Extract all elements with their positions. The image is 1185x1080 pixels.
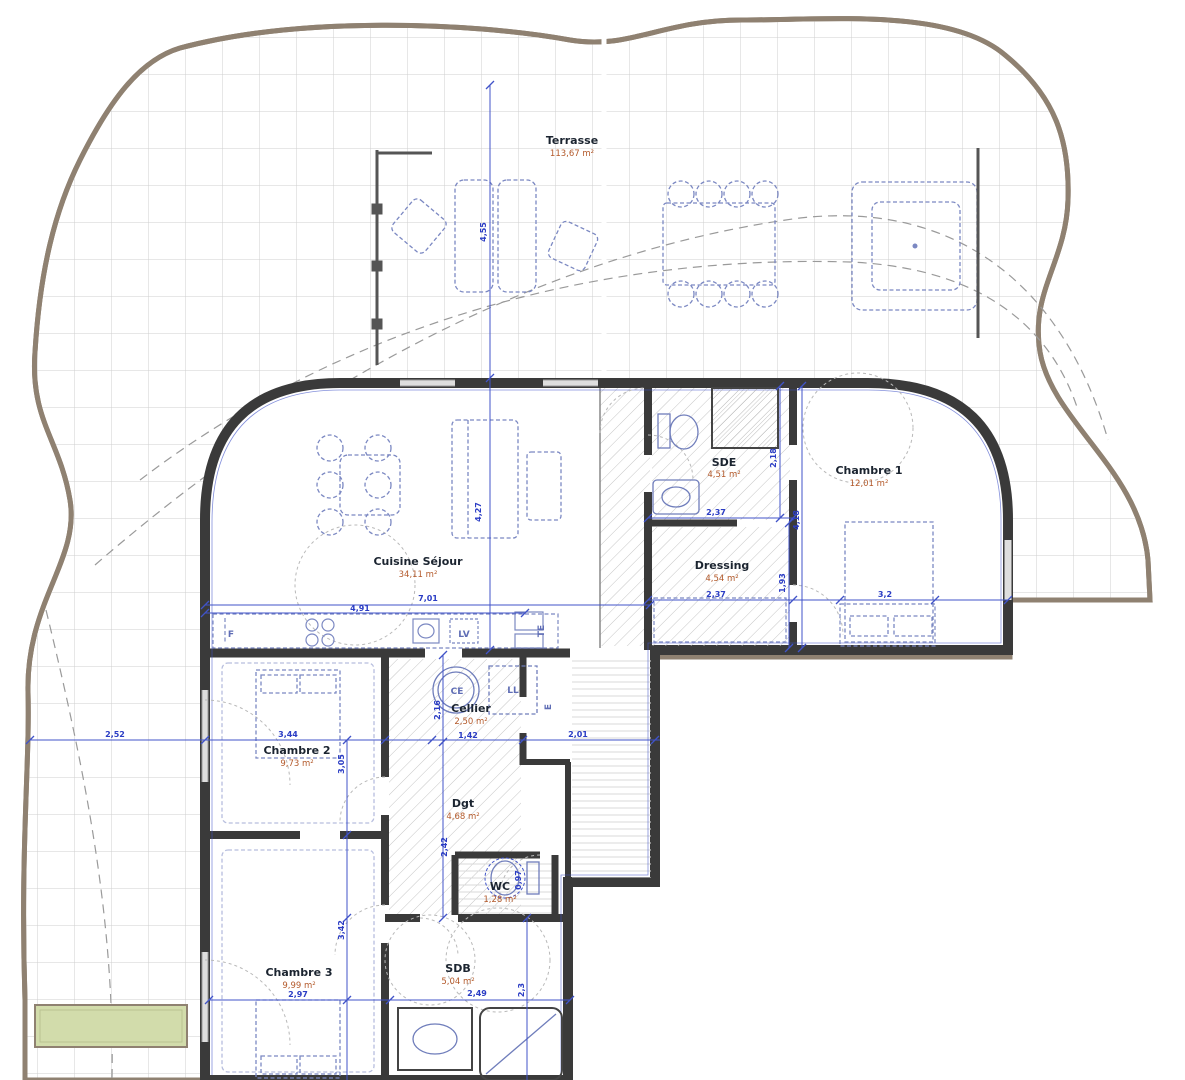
dim-2-37-dressing: 2,37 xyxy=(706,590,726,599)
room-area-dressing: 4,54 m² xyxy=(705,574,738,584)
room-label-chambre-1: Chambre 1 xyxy=(835,464,902,477)
dim-3-05: 3,05 xyxy=(337,754,346,774)
room-area-cellier: 2,50 m² xyxy=(454,717,487,727)
dim-1-93: 1,93 xyxy=(778,573,787,593)
dim-3-44: 3,44 xyxy=(278,730,298,739)
dim-2-49: 2,49 xyxy=(467,989,487,998)
room-label-terrasse: Terrasse xyxy=(546,134,598,147)
appliance-label-water-heater: CE xyxy=(451,687,464,697)
appliance-label-fridge: F xyxy=(228,630,234,640)
room-area-sdb: 5,04 m² xyxy=(441,977,474,987)
dim-4-27: 4,27 xyxy=(474,502,483,522)
dim-2-97: 2,97 xyxy=(288,990,308,999)
room-area-wc: 1,28 m² xyxy=(483,895,516,905)
room-label-cellier: Cellier xyxy=(451,702,491,715)
room-label-cuisine-sejour: Cuisine Séjour xyxy=(373,555,463,568)
room-label-dressing: Dressing xyxy=(695,559,750,572)
dim-0-97: 0,97 xyxy=(514,870,523,890)
dim-3-2: 3,2 xyxy=(878,590,892,599)
appliance-label-dishwasher: LV xyxy=(458,630,469,640)
dim-2-16: 2,16 xyxy=(433,700,442,720)
floor-plan-page: Terrasse 113,67 m² Cuisine Séjour 34,11 … xyxy=(0,0,1185,1080)
appliance-label-washer: LL xyxy=(507,686,519,696)
room-area-dgt: 4,68 m² xyxy=(446,812,479,822)
room-area-sde: 4,51 m² xyxy=(707,470,740,480)
corridor-floor xyxy=(572,659,651,878)
room-label-wc: WC xyxy=(490,880,510,893)
appliance-label-e: E xyxy=(544,704,554,710)
dim-7-01: 7,01 xyxy=(418,594,438,603)
room-area-chambre-1: 12,01 m² xyxy=(850,479,889,489)
dim-3-42: 3,42 xyxy=(337,920,346,940)
dim-4-91: 4,91 xyxy=(350,604,370,613)
entry-hall-floor xyxy=(600,388,650,646)
dim-2-52: 2,52 xyxy=(105,730,125,739)
dim-4-55: 4,55 xyxy=(479,222,488,242)
floor-plan-drawing: Terrasse 113,67 m² Cuisine Séjour 34,11 … xyxy=(0,0,1185,1080)
dim-2-18: 2,18 xyxy=(769,448,778,468)
room-label-sdb: SDB xyxy=(445,962,470,975)
room-label-sde: SDE xyxy=(712,456,737,469)
room-label-dgt: Dgt xyxy=(452,797,474,810)
dim-2-01: 2,01 xyxy=(568,730,588,739)
room-label-chambre-2: Chambre 2 xyxy=(263,744,330,757)
dim-2-37-sde: 2,37 xyxy=(706,508,726,517)
dim-2-3: 2,3 xyxy=(517,983,526,997)
dim-1-42: 1,42 xyxy=(458,731,478,740)
dim-4-18: 4,18 xyxy=(792,510,801,530)
room-area-terrasse: 113,67 m² xyxy=(550,149,594,159)
planter xyxy=(35,1005,187,1047)
room-area-chambre-2: 9,73 m² xyxy=(280,759,313,769)
dim-2-42: 2,42 xyxy=(440,837,449,857)
room-area-cuisine-sejour: 34,11 m² xyxy=(399,570,438,580)
room-label-chambre-3: Chambre 3 xyxy=(265,966,332,979)
dressing-floor xyxy=(652,527,790,646)
appliance-label-electrical-panel: TE xyxy=(537,625,547,637)
